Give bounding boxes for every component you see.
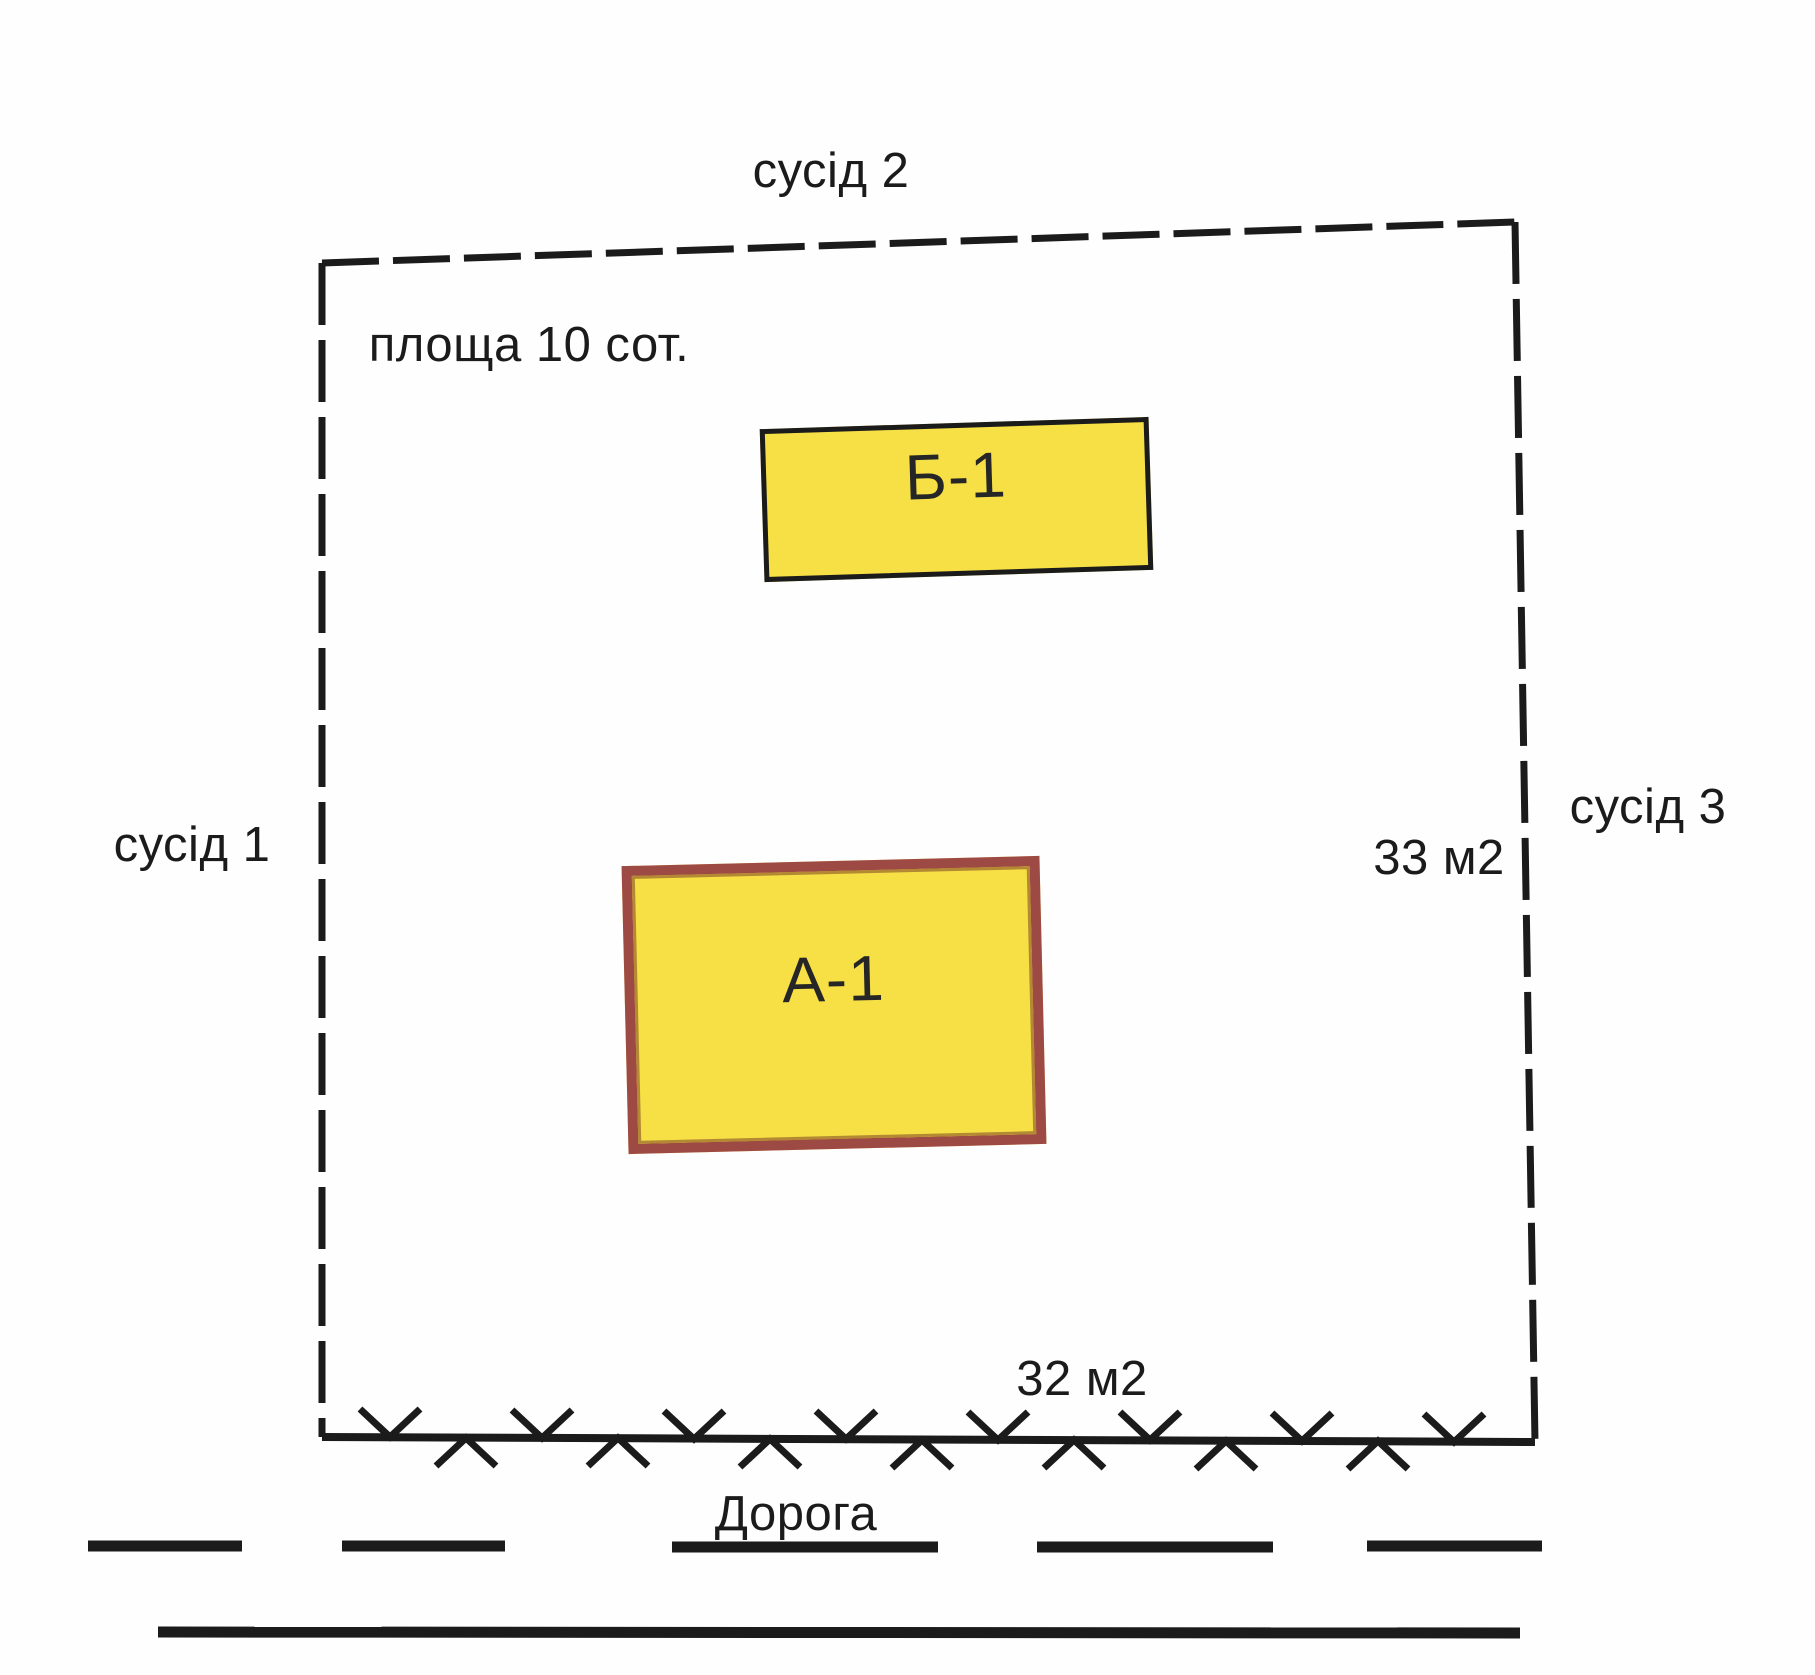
boundary-bottom: [322, 1437, 1535, 1442]
fence-mark: [892, 1440, 952, 1468]
fence-mark: [1120, 1412, 1180, 1440]
neighbor-right-label: сусід 3: [1570, 781, 1727, 835]
boundary-right: [1515, 222, 1535, 1442]
fence-mark: [360, 1409, 420, 1437]
fence-mark: [436, 1438, 496, 1466]
fence-mark: [740, 1439, 800, 1467]
road-center-line: [88, 1546, 1542, 1547]
building-a: А-1: [622, 856, 1047, 1154]
fence-mark: [1196, 1441, 1256, 1469]
building-b-label: Б-1: [904, 437, 1008, 514]
fence-mark: [1272, 1413, 1332, 1441]
neighbor-left-label: сусід 1: [114, 819, 271, 873]
building-b: Б-1: [760, 417, 1154, 582]
road-edge-line: [158, 1632, 1520, 1633]
fence-mark: [1044, 1440, 1104, 1468]
fence-mark: [816, 1411, 876, 1439]
building-a-label: А-1: [781, 941, 885, 1017]
neighbor-top-label: сусід 2: [753, 145, 910, 199]
area-note-bottom: 32 м2: [1016, 1353, 1148, 1407]
area-note-right: 33 м2: [1373, 832, 1505, 886]
site-plan-canvas: Б-1 А-1 сусід 2 площа 10 сот. сусід 1 су…: [0, 0, 1815, 1675]
fence-mark: [512, 1410, 572, 1438]
plot-area-label: площа 10 сот.: [369, 319, 690, 373]
plot-drawing: [0, 0, 1815, 1675]
boundary-top: [322, 222, 1515, 263]
road-label: Дорога: [715, 1488, 878, 1542]
